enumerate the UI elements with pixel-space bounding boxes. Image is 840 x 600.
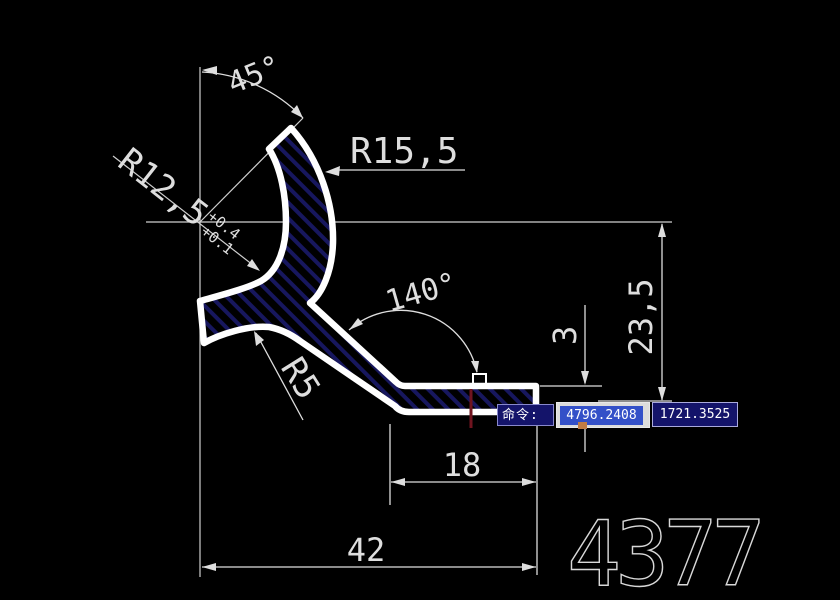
- dim-width-42[interactable]: 42: [202, 416, 537, 575]
- cad-viewport[interactable]: 45° R15,5 R12,5 +0.4 +0.1 140° R5 3: [0, 0, 840, 600]
- dim-text-42[interactable]: 42: [347, 531, 386, 569]
- coord-x-selection[interactable]: 4796.2408: [560, 406, 643, 425]
- dim-radius-r125[interactable]: R12,5 +0.4 +0.1: [110, 141, 260, 271]
- arrowhead: [581, 371, 589, 385]
- dim-thickness-3[interactable]: 3: [540, 305, 602, 452]
- coord-y-value: 1721.3525: [660, 408, 730, 421]
- dim-text-140[interactable]: 140°: [382, 266, 461, 320]
- drawing-canvas[interactable]: 45° R15,5 R12,5 +0.4 +0.1 140° R5 3: [0, 0, 840, 600]
- dim-height-235[interactable]: 23,5: [598, 223, 672, 401]
- arrowhead: [291, 105, 303, 118]
- arrowhead: [658, 387, 666, 401]
- dim-angle-45[interactable]: 45°: [202, 49, 303, 118]
- coord-y-field[interactable]: 1721.3525: [652, 402, 738, 427]
- dim-radius-r155[interactable]: R15,5: [325, 131, 465, 176]
- arrowhead: [658, 223, 666, 237]
- coord-x-value: 4796.2408: [566, 409, 636, 422]
- arrowhead: [202, 563, 216, 571]
- coord-x-field[interactable]: 4796.2408: [556, 402, 650, 428]
- arrowhead: [522, 478, 536, 486]
- dim-text-235[interactable]: 23,5: [622, 278, 660, 355]
- arrowhead: [325, 166, 340, 176]
- dim-text-r155[interactable]: R15,5: [350, 131, 458, 172]
- command-prompt-label: 命令:: [502, 409, 539, 422]
- command-prompt[interactable]: 命令:: [497, 404, 554, 426]
- arrowhead: [247, 259, 260, 271]
- part-number-text: 4377: [567, 502, 760, 600]
- arrowhead: [202, 66, 217, 75]
- arrowhead: [391, 478, 405, 486]
- dim-text-18[interactable]: 18: [443, 446, 482, 484]
- arrowhead: [471, 361, 479, 373]
- dim-width-18[interactable]: 18: [390, 424, 536, 505]
- dim-text-3[interactable]: 3: [546, 326, 584, 345]
- arrowhead: [349, 318, 363, 330]
- arrowhead: [522, 563, 536, 571]
- autosnap-tick-orange: [578, 422, 587, 429]
- dim-text-45[interactable]: 45°: [223, 49, 286, 102]
- dim-text-r5[interactable]: R5: [272, 351, 328, 407]
